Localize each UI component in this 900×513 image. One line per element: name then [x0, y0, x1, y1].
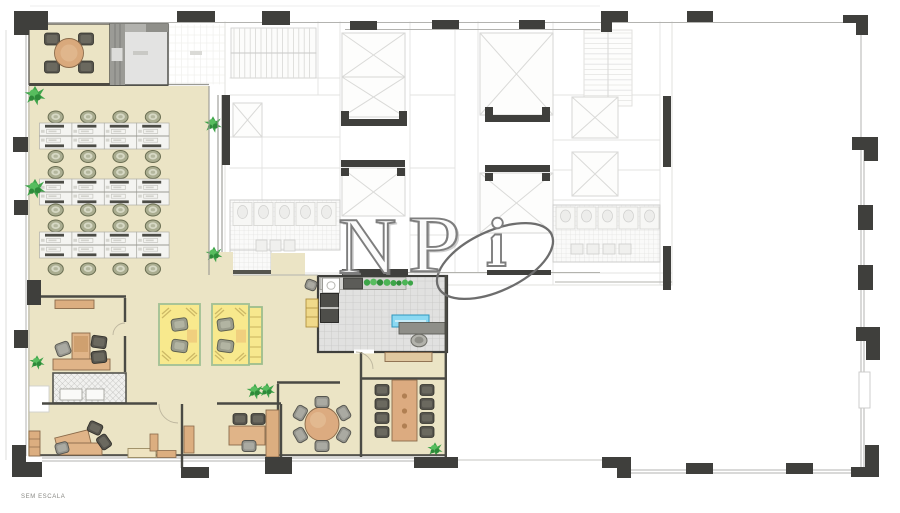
svg-text:N: N	[338, 201, 397, 291]
svg-text:P: P	[408, 200, 460, 289]
svg-text:SEM ESCALA: SEM ESCALA	[21, 494, 65, 500]
